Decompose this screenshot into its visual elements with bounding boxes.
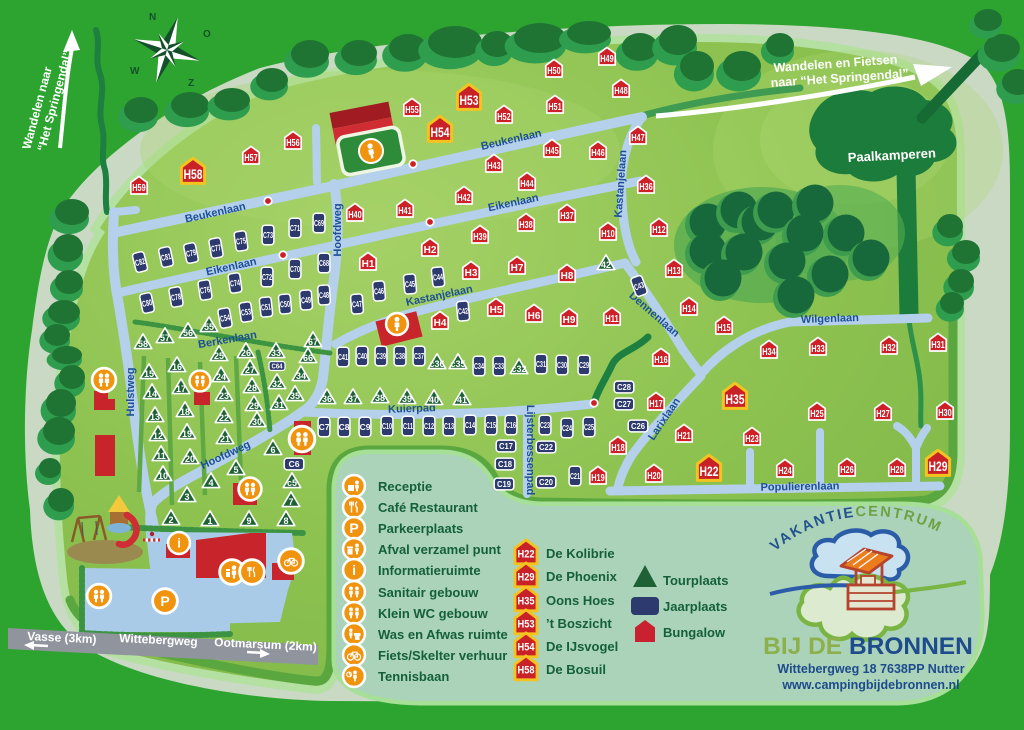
svg-text:De IJsvogel: De IJsvogel <box>546 639 618 654</box>
svg-text:Z: Z <box>188 78 194 89</box>
svg-text:9: 9 <box>246 516 251 526</box>
svg-text:55: 55 <box>204 322 214 332</box>
svg-text:H53: H53 <box>460 93 479 108</box>
svg-text:C49: C49 <box>301 295 312 306</box>
svg-text:C53: C53 <box>240 306 251 317</box>
svg-text:C23: C23 <box>540 420 550 430</box>
svg-text:C28: C28 <box>617 382 631 392</box>
svg-text:58: 58 <box>138 339 148 349</box>
svg-text:H51: H51 <box>548 102 562 113</box>
svg-text:2: 2 <box>168 515 173 525</box>
svg-text:Lijsterbessenpad: Lijsterbessenpad <box>524 405 536 495</box>
svg-text:C11: C11 <box>403 421 413 431</box>
svg-text:H33: H33 <box>811 344 825 355</box>
svg-text:H26: H26 <box>840 465 854 476</box>
svg-text:Café Restaurant: Café Restaurant <box>378 500 478 515</box>
svg-text:C34: C34 <box>474 361 484 371</box>
svg-text:32: 32 <box>272 379 282 389</box>
svg-text:H59: H59 <box>132 183 146 194</box>
svg-text:Wittebergweg 18 7638PP Nutter: Wittebergweg 18 7638PP Nutter <box>777 662 964 676</box>
svg-text:C20: C20 <box>539 477 553 487</box>
svg-text:C75: C75 <box>235 235 246 246</box>
svg-text:H2: H2 <box>424 245 437 256</box>
svg-text:c36: c36 <box>429 359 444 369</box>
svg-text:i: i <box>352 562 356 578</box>
svg-text:H28: H28 <box>890 465 904 476</box>
svg-text:C30: C30 <box>557 360 567 370</box>
svg-text:H7: H7 <box>511 263 524 274</box>
svg-text:C78: C78 <box>170 291 182 303</box>
svg-text:H29: H29 <box>929 459 948 474</box>
svg-text:C42: C42 <box>458 306 469 317</box>
svg-text:H25: H25 <box>810 409 824 420</box>
svg-text:Receptie: Receptie <box>378 479 432 494</box>
svg-text:BIJ DE BRONNEN: BIJ DE BRONNEN <box>763 633 973 660</box>
svg-text:c35: c35 <box>450 359 465 369</box>
svg-text:5: 5 <box>233 465 238 475</box>
svg-text:H52: H52 <box>497 112 511 123</box>
svg-text:H58: H58 <box>184 167 203 182</box>
svg-text:Oons Hoes: Oons Hoes <box>546 593 615 608</box>
svg-text:C64: C64 <box>272 364 283 371</box>
svg-text:H54: H54 <box>431 125 450 140</box>
svg-text:67: 67 <box>308 337 318 347</box>
svg-text:Was en Afwas ruimte: Was en Afwas ruimte <box>378 627 508 642</box>
svg-text:19: 19 <box>182 429 192 439</box>
svg-text:De Phoenix: De Phoenix <box>546 569 618 584</box>
svg-text:H23: H23 <box>745 434 759 445</box>
svg-text:H32: H32 <box>882 343 896 354</box>
svg-text:C12: C12 <box>424 421 434 431</box>
svg-text:Populierenlaan: Populierenlaan <box>760 480 839 493</box>
svg-text:57: 57 <box>160 333 170 343</box>
svg-text:C68: C68 <box>319 258 329 268</box>
svg-text:H45: H45 <box>545 146 559 157</box>
svg-text:H11: H11 <box>605 314 619 325</box>
svg-text:c32: c32 <box>511 364 526 374</box>
svg-text:C70: C70 <box>290 264 300 274</box>
svg-text:C19: C19 <box>497 479 511 489</box>
svg-text:C15: C15 <box>486 420 496 430</box>
svg-text:35: 35 <box>290 391 300 401</box>
svg-text:C13: C13 <box>444 421 454 431</box>
svg-text:C38: C38 <box>395 351 405 361</box>
svg-text:Tourplaats: Tourplaats <box>663 573 729 588</box>
svg-text:26: 26 <box>241 348 251 358</box>
svg-text:H5: H5 <box>490 305 503 316</box>
svg-text:O: O <box>203 29 211 40</box>
svg-text:C69: C69 <box>314 218 324 228</box>
svg-text:H6: H6 <box>528 311 541 322</box>
svg-text:20: 20 <box>185 454 195 464</box>
svg-text:H21: H21 <box>677 431 691 442</box>
svg-text:7: 7 <box>288 497 293 507</box>
svg-text:H29: H29 <box>518 572 535 584</box>
svg-text:C51: C51 <box>261 301 272 312</box>
svg-text:C76: C76 <box>199 284 211 295</box>
svg-text:C21: C21 <box>570 471 580 481</box>
svg-text:C29: C29 <box>579 360 589 370</box>
svg-text:13: 13 <box>150 412 160 422</box>
svg-text:C72: C72 <box>262 272 272 282</box>
svg-text:C31: C31 <box>536 359 546 369</box>
svg-text:4: 4 <box>208 478 213 488</box>
svg-text:H14: H14 <box>682 304 696 315</box>
svg-text:N: N <box>149 12 156 23</box>
svg-text:H50: H50 <box>547 66 561 77</box>
svg-text:H12: H12 <box>652 225 666 236</box>
svg-text:H55: H55 <box>405 105 419 116</box>
svg-text:H44: H44 <box>520 179 534 190</box>
svg-text:22: 22 <box>219 413 229 423</box>
svg-text:P: P <box>160 593 169 609</box>
svg-text:H19: H19 <box>591 473 605 484</box>
svg-text:H24: H24 <box>778 466 792 477</box>
svg-text:H35: H35 <box>726 392 745 407</box>
svg-text:C45: C45 <box>405 279 416 290</box>
svg-text:H9: H9 <box>563 315 576 326</box>
svg-text:H56: H56 <box>286 138 300 149</box>
svg-text:Informatieruimte: Informatieruimte <box>378 563 481 578</box>
svg-text:C26: C26 <box>631 421 645 431</box>
svg-text:18: 18 <box>180 407 190 417</box>
svg-text:Klein WC gebouw: Klein WC gebouw <box>378 606 489 621</box>
svg-text:C18: C18 <box>498 459 512 469</box>
svg-text:C10: C10 <box>382 421 392 431</box>
svg-text:P: P <box>349 520 358 536</box>
svg-text:42: 42 <box>601 260 611 270</box>
svg-text:24: 24 <box>216 372 226 382</box>
svg-text:C37: C37 <box>414 351 424 361</box>
svg-text:21: 21 <box>220 434 230 444</box>
svg-text:27: 27 <box>245 365 255 375</box>
svg-text:C40: C40 <box>357 351 367 361</box>
svg-text:H22: H22 <box>518 549 535 561</box>
svg-text:H40: H40 <box>348 210 362 221</box>
svg-text:C44: C44 <box>433 271 444 282</box>
svg-text:C73: C73 <box>263 230 273 240</box>
svg-text:30: 30 <box>252 417 262 427</box>
svg-text:Hoofdweg: Hoofdweg <box>332 203 344 256</box>
svg-text:1: 1 <box>207 516 212 526</box>
svg-text:H10: H10 <box>601 229 615 240</box>
svg-text:C74: C74 <box>229 277 240 288</box>
svg-text:C9: C9 <box>360 422 371 432</box>
svg-text:H34: H34 <box>762 347 776 358</box>
svg-text:H22: H22 <box>700 464 719 479</box>
svg-text:40: 40 <box>429 395 439 405</box>
svg-text:H3: H3 <box>465 268 478 279</box>
svg-text:3: 3 <box>184 492 189 502</box>
svg-text:Afval verzamel punt: Afval verzamel punt <box>378 542 501 557</box>
svg-text:C39: C39 <box>376 351 386 361</box>
svg-text:H48: H48 <box>614 86 628 97</box>
svg-text:C50: C50 <box>280 299 291 310</box>
svg-text:’t Boszicht: ’t Boszicht <box>546 616 612 631</box>
svg-text:17: 17 <box>176 384 186 394</box>
svg-text:39: 39 <box>402 394 412 404</box>
svg-text:C14: C14 <box>465 420 475 430</box>
svg-text:29: 29 <box>249 401 259 411</box>
svg-text:6: 6 <box>270 445 275 455</box>
svg-text:12: 12 <box>153 431 163 441</box>
svg-text:Tennisbaan: Tennisbaan <box>378 669 449 684</box>
svg-text:38: 38 <box>375 393 385 403</box>
svg-text:C54: C54 <box>219 312 231 324</box>
svg-text:De Bosuil: De Bosuil <box>546 662 606 677</box>
svg-text:C6: C6 <box>289 459 300 469</box>
svg-text:Hulstweg: Hulstweg <box>125 368 137 417</box>
svg-text:C41: C41 <box>338 352 348 362</box>
svg-text:C17: C17 <box>499 441 513 451</box>
svg-text:H13: H13 <box>667 266 681 277</box>
svg-text:34: 34 <box>296 371 306 381</box>
svg-text:H37: H37 <box>560 211 574 222</box>
svg-text:i: i <box>177 536 181 551</box>
svg-text:www.campingbijdebronnen.nl: www.campingbijdebronnen.nl <box>781 678 959 692</box>
svg-text:H49: H49 <box>600 54 614 65</box>
svg-text:C46: C46 <box>374 286 385 297</box>
svg-text:H36: H36 <box>639 182 653 193</box>
svg-text:C7: C7 <box>319 422 330 432</box>
svg-text:H8: H8 <box>561 271 574 282</box>
svg-text:15: 15 <box>144 369 154 379</box>
svg-text:36: 36 <box>322 394 332 404</box>
svg-text:C25: C25 <box>584 422 594 432</box>
svg-text:56: 56 <box>183 328 193 338</box>
svg-text:H47: H47 <box>631 133 645 144</box>
svg-text:14: 14 <box>147 389 157 399</box>
svg-text:C27: C27 <box>617 399 631 409</box>
svg-text:H27: H27 <box>876 409 890 420</box>
svg-text:H58: H58 <box>518 665 535 677</box>
svg-text:H31: H31 <box>931 340 945 351</box>
svg-text:Jaarplaats: Jaarplaats <box>663 599 727 614</box>
svg-text:33: 33 <box>271 348 281 358</box>
svg-text:16: 16 <box>172 362 182 372</box>
svg-text:Bungalow: Bungalow <box>663 625 726 640</box>
svg-text:25: 25 <box>214 351 224 361</box>
svg-text:De Kolibrie: De Kolibrie <box>546 546 615 561</box>
svg-text:W: W <box>130 66 140 77</box>
svg-text:C47: C47 <box>352 299 363 310</box>
svg-text:C71: C71 <box>290 223 300 233</box>
svg-text:H15: H15 <box>717 323 731 334</box>
svg-text:C33: C33 <box>494 361 504 371</box>
svg-text:Wilgenlaan: Wilgenlaan <box>801 312 860 326</box>
svg-text:H17: H17 <box>649 399 663 410</box>
svg-text:23: 23 <box>219 391 229 401</box>
svg-text:C16: C16 <box>506 420 516 430</box>
svg-text:H41: H41 <box>398 206 412 217</box>
svg-text:H30: H30 <box>938 408 952 419</box>
svg-text:H16: H16 <box>654 355 668 366</box>
svg-text:H42: H42 <box>457 193 471 204</box>
svg-text:H54: H54 <box>518 642 536 654</box>
svg-text:C48: C48 <box>319 290 330 301</box>
svg-text:Sanitair gebouw: Sanitair gebouw <box>378 585 479 600</box>
svg-text:8: 8 <box>283 516 288 526</box>
svg-text:H46: H46 <box>591 148 605 159</box>
svg-text:H20: H20 <box>647 471 661 482</box>
svg-text:37: 37 <box>348 394 358 404</box>
svg-text:c5: c5 <box>287 478 297 488</box>
svg-text:C24: C24 <box>562 423 572 433</box>
svg-text:Parkeerplaats: Parkeerplaats <box>378 521 463 536</box>
svg-text:66: 66 <box>303 353 313 363</box>
svg-text:28: 28 <box>247 383 257 393</box>
svg-text:31: 31 <box>274 400 284 410</box>
svg-text:H38: H38 <box>519 220 533 231</box>
svg-text:C8: C8 <box>339 422 350 432</box>
svg-text:H43: H43 <box>487 161 501 172</box>
svg-text:H39: H39 <box>473 232 487 243</box>
svg-text:C22: C22 <box>539 442 553 452</box>
svg-text:C77: C77 <box>210 242 222 254</box>
svg-text:10: 10 <box>158 471 168 481</box>
svg-text:H57: H57 <box>244 153 258 164</box>
svg-text:H18: H18 <box>611 443 625 454</box>
svg-text:Fiets/Skelter verhuur: Fiets/Skelter verhuur <box>378 648 507 663</box>
svg-text:11: 11 <box>156 451 166 461</box>
svg-text:H35: H35 <box>518 596 535 608</box>
svg-text:H4: H4 <box>434 318 447 329</box>
svg-text:H1: H1 <box>362 259 375 270</box>
svg-text:H53: H53 <box>518 619 535 631</box>
svg-text:41: 41 <box>457 395 467 405</box>
